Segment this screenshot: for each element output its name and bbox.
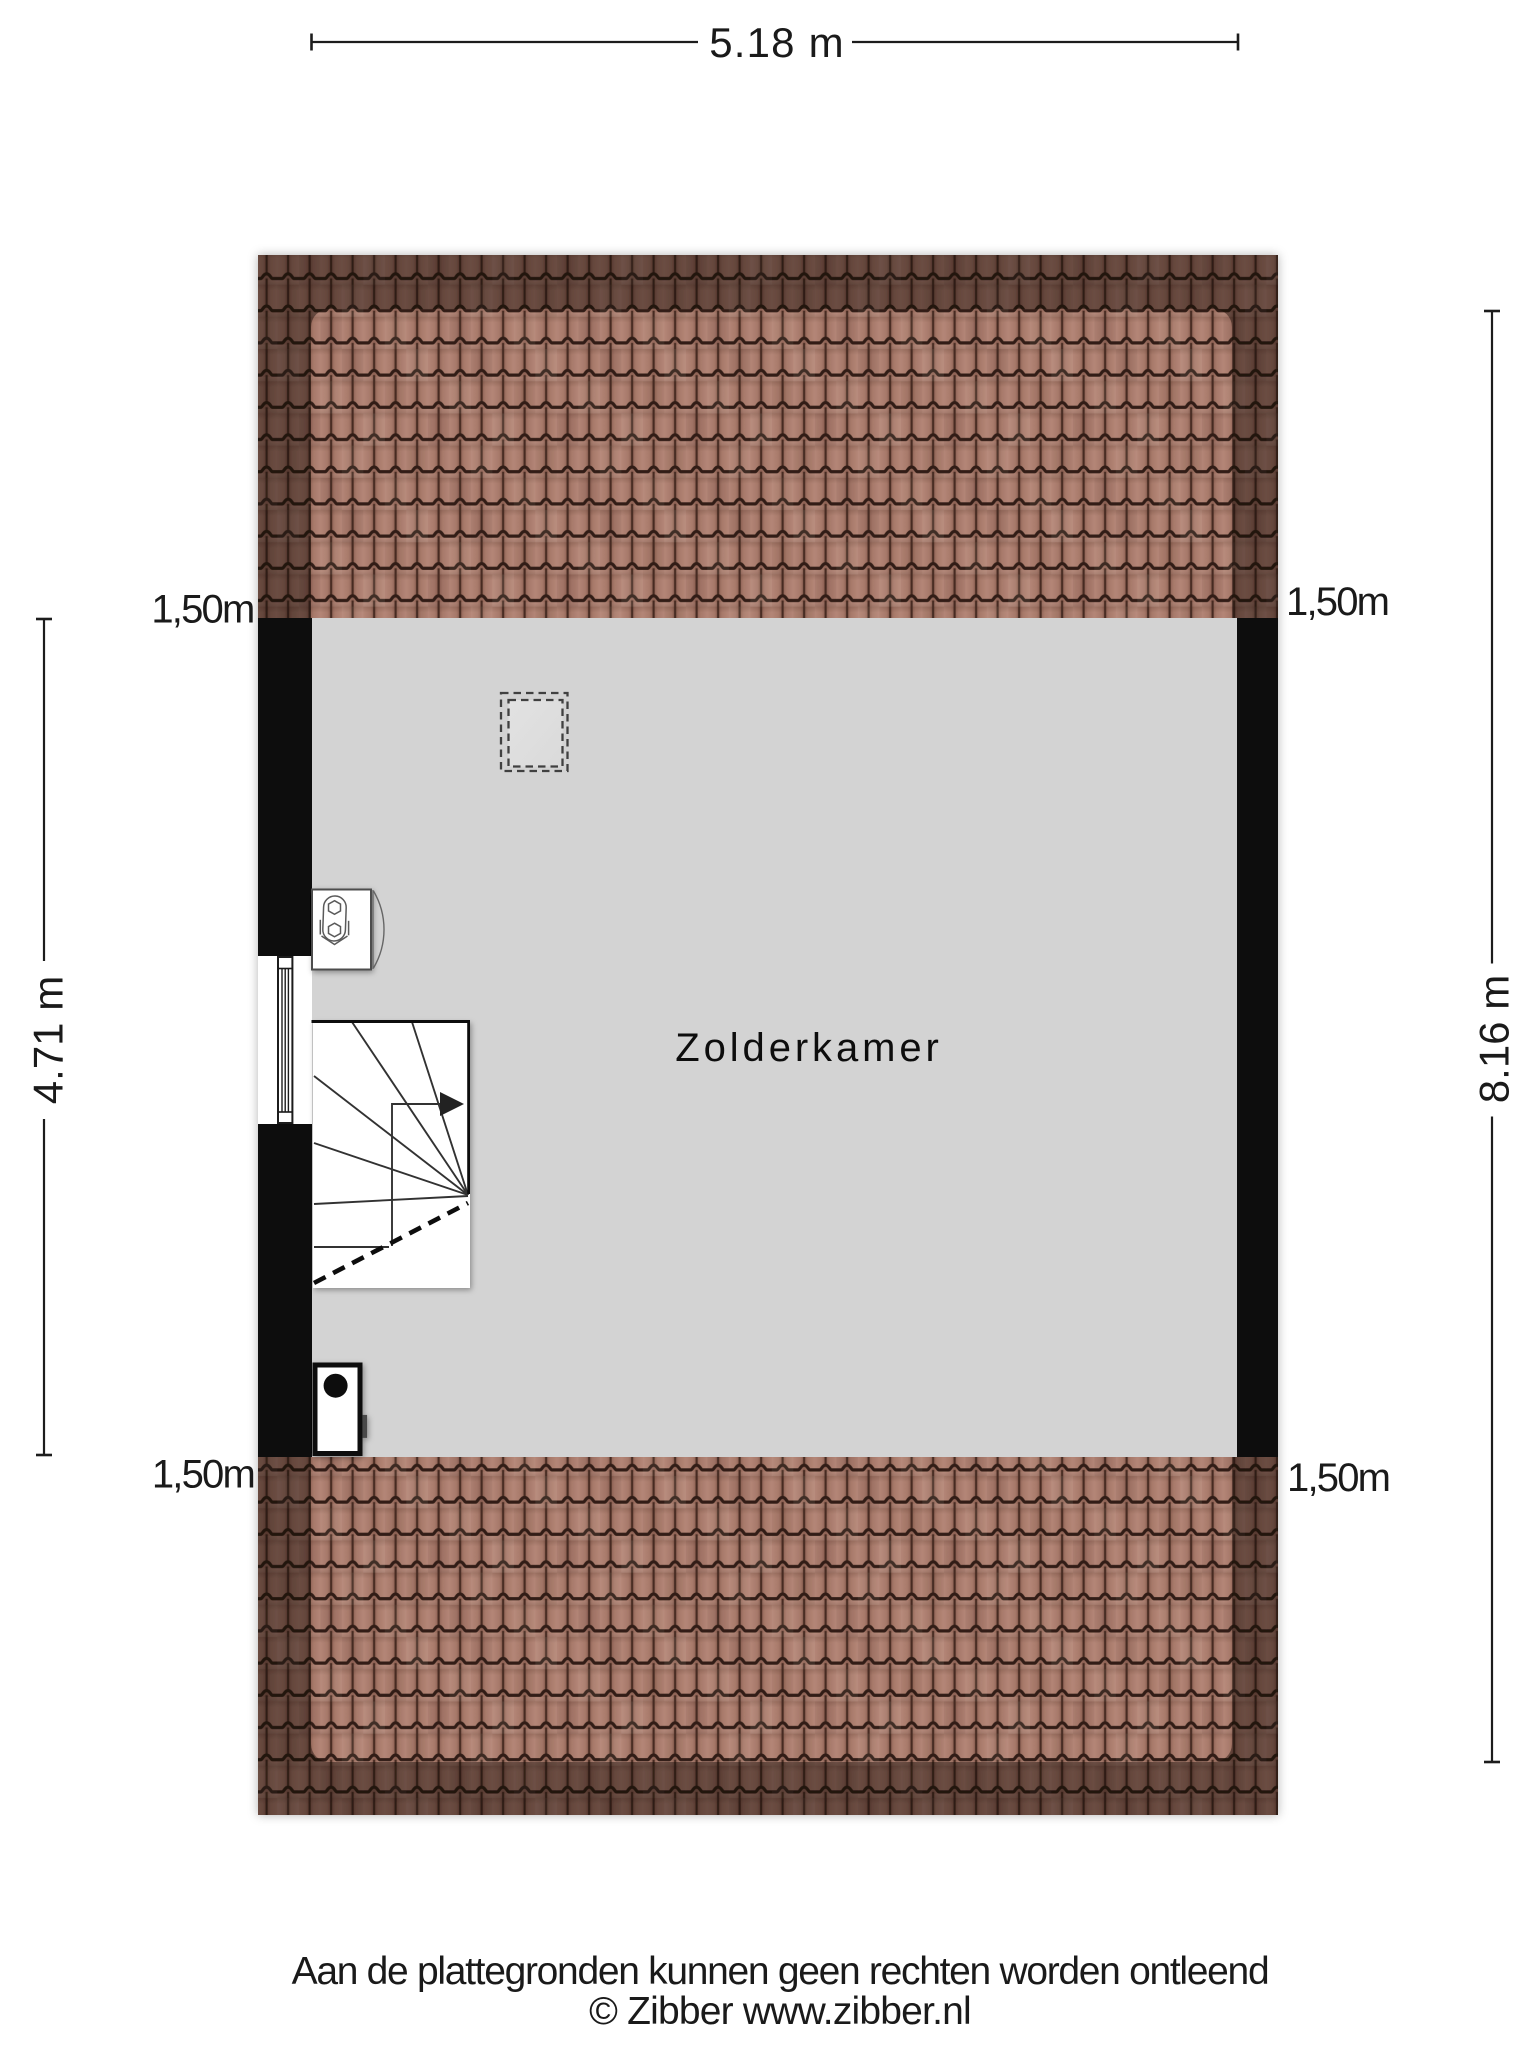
svg-text:© Zibber www.zibber.nl: © Zibber www.zibber.nl — [589, 1990, 971, 2033]
svg-text:1,50m: 1,50m — [152, 1453, 254, 1497]
svg-text:1,50m: 1,50m — [151, 588, 253, 632]
svg-text:1,50m: 1,50m — [1286, 580, 1388, 624]
svg-text:1,50m: 1,50m — [1287, 1456, 1389, 1500]
svg-text:5.18 m: 5.18 m — [709, 19, 845, 66]
svg-text:Aan de plattegronden kunnen ge: Aan de plattegronden kunnen geen rechten… — [292, 1950, 1269, 1993]
svg-text:Zolderkamer: Zolderkamer — [675, 1026, 942, 1070]
svg-text:4.71 m: 4.71 m — [25, 976, 72, 1104]
svg-text:8.16 m: 8.16 m — [1471, 975, 1518, 1103]
